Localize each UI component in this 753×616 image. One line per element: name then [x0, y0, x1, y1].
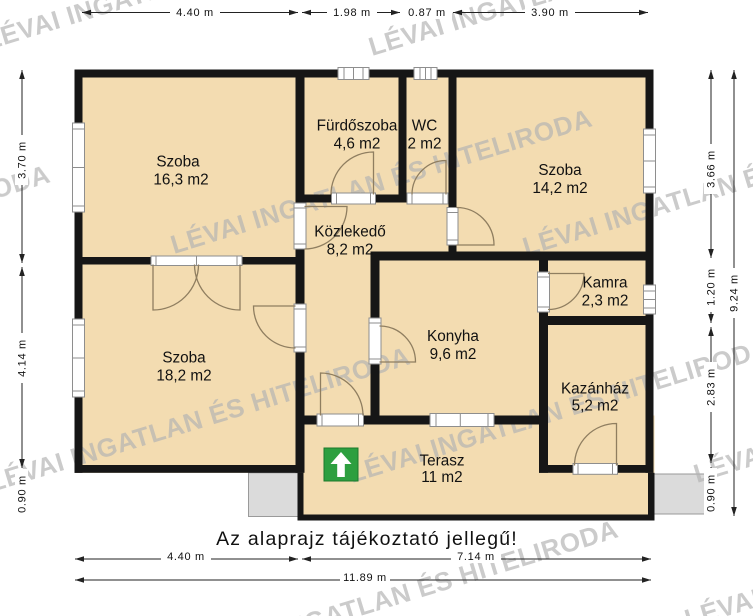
svg-text:0.90 m: 0.90 m [17, 475, 29, 513]
svg-text:3.66 m: 3.66 m [706, 150, 718, 188]
svg-text:4.14 m: 4.14 m [17, 339, 29, 377]
svg-text:18,2 m2: 18,2 m2 [156, 368, 211, 385]
svg-text:Közlekedő: Közlekedő [314, 224, 385, 241]
svg-text:4.40 m: 4.40 m [167, 551, 205, 563]
svg-text:11 m2: 11 m2 [421, 469, 462, 486]
svg-text:5,2 m2: 5,2 m2 [572, 398, 619, 415]
svg-text:Szoba: Szoba [162, 350, 206, 367]
svg-text:Konyha: Konyha [427, 328, 479, 345]
svg-text:1.98 m: 1.98 m [333, 7, 371, 19]
svg-text:16,3 m2: 16,3 m2 [153, 172, 208, 189]
svg-text:11.89 m: 11.89 m [343, 572, 387, 584]
svg-text:2.83 m: 2.83 m [706, 368, 718, 406]
svg-text:Kazánház: Kazánház [561, 381, 629, 398]
svg-text:WC: WC [412, 118, 438, 135]
svg-text:Fürdőszoba: Fürdőszoba [317, 118, 398, 135]
svg-text:Szoba: Szoba [538, 162, 582, 179]
svg-text:2 m2: 2 m2 [407, 136, 441, 153]
svg-text:1.20 m: 1.20 m [706, 268, 718, 306]
svg-text:Kamra: Kamra [582, 275, 628, 292]
svg-text:Terasz: Terasz [419, 453, 464, 470]
svg-text:4.40 m: 4.40 m [176, 7, 214, 19]
svg-text:14,2 m2: 14,2 m2 [532, 180, 587, 197]
svg-text:9,6 m2: 9,6 m2 [430, 346, 477, 363]
svg-text:3.90 m: 3.90 m [531, 7, 569, 19]
svg-text:Az alaprajz tájékoztató jelleg: Az alaprajz tájékoztató jellegű! [216, 528, 518, 550]
svg-text:2,3 m2: 2,3 m2 [582, 293, 629, 310]
svg-text:9.24 m: 9.24 m [729, 274, 741, 312]
svg-text:Szoba: Szoba [156, 154, 200, 171]
svg-text:3.70 m: 3.70 m [17, 141, 29, 179]
svg-text:0.90 m: 0.90 m [706, 474, 718, 512]
svg-text:0.87 m: 0.87 m [408, 7, 446, 19]
svg-text:8,2 m2: 8,2 m2 [327, 242, 374, 259]
svg-text:4,6 m2: 4,6 m2 [334, 136, 381, 153]
svg-text:7.14 m: 7.14 m [457, 551, 495, 563]
